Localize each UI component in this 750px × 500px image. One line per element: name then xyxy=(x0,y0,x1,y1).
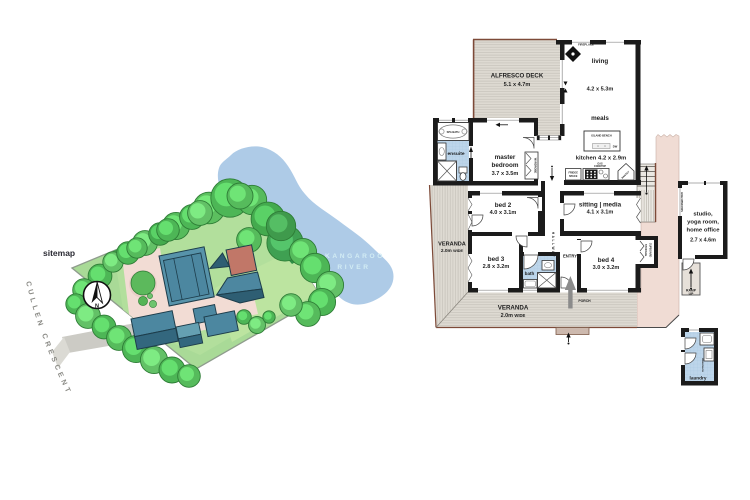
svg-text:studio,: studio, xyxy=(693,212,713,218)
svg-text:5.1 x 4.7m: 5.1 x 4.7m xyxy=(504,82,531,88)
svg-text:home office: home office xyxy=(686,228,720,234)
svg-text:KANGAROO: KANGAROO xyxy=(325,253,385,260)
svg-text:N: N xyxy=(95,304,99,310)
svg-text:ALFRESCO DECK: ALFRESCO DECK xyxy=(491,73,544,80)
svg-text:bed 3: bed 3 xyxy=(488,256,505,263)
svg-text:bedroom: bedroom xyxy=(492,162,519,169)
svg-text:SPACE: SPACE xyxy=(569,175,578,178)
svg-text:UP: UP xyxy=(689,292,694,296)
svg-text:3.7 x 3.5m: 3.7 x 3.5m xyxy=(492,171,519,177)
svg-text:3.0 x 3.2m: 3.0 x 3.2m xyxy=(593,265,620,271)
svg-text:PORCH: PORCH xyxy=(578,299,591,303)
svg-text:sitemap: sitemap xyxy=(43,248,75,258)
svg-text:VERANDA: VERANDA xyxy=(438,242,466,248)
svg-text:sitting | media: sitting | media xyxy=(579,202,622,209)
svg-text:bed 4: bed 4 xyxy=(598,257,615,264)
svg-text:HIGH WINDOWS: HIGH WINDOWS xyxy=(680,192,683,212)
svg-text:WASH MACH: WASH MACH xyxy=(701,358,704,372)
svg-text:DW: DW xyxy=(613,145,618,149)
svg-text:RIVER: RIVER xyxy=(337,264,370,271)
svg-text:2.7 x 4.6m: 2.7 x 4.6m xyxy=(690,238,716,244)
svg-text:4.0 x 3.1m: 4.0 x 3.1m xyxy=(490,210,517,216)
svg-text:4.1 x 3.1m: 4.1 x 3.1m xyxy=(587,210,614,216)
svg-text:FIREPLACE: FIREPLACE xyxy=(578,43,594,47)
svg-text:4.2 x 5.3m: 4.2 x 5.3m xyxy=(587,87,614,93)
svg-text:ensuite: ensuite xyxy=(447,151,464,157)
svg-text:master: master xyxy=(495,154,516,161)
svg-text:bath: bath xyxy=(525,271,535,276)
svg-text:STORAGE: STORAGE xyxy=(644,244,647,257)
svg-text:bed 2: bed 2 xyxy=(495,202,512,209)
svg-text:meals: meals xyxy=(591,115,609,122)
svg-text:yoga room,: yoga room, xyxy=(687,220,719,226)
svg-text:COOKTOP: COOKTOP xyxy=(594,165,606,168)
svg-text:SPA BATH: SPA BATH xyxy=(447,130,460,134)
svg-text:2.8 x 3.2m: 2.8 x 3.2m xyxy=(483,264,510,270)
svg-text:VERANDA: VERANDA xyxy=(498,305,529,312)
svg-text:ISLAND BENCH: ISLAND BENCH xyxy=(591,134,611,138)
svg-text:living: living xyxy=(592,58,609,65)
svg-text:CUPBOARD: CUPBOARD xyxy=(649,243,652,258)
svg-text:kitchen 4.2 x 2.9m: kitchen 4.2 x 2.9m xyxy=(576,156,626,162)
svg-text:ENTRY: ENTRY xyxy=(563,254,577,259)
svg-text:laundry: laundry xyxy=(690,376,707,381)
svg-text:WARDROBE: WARDROBE xyxy=(534,158,538,174)
svg-text:HALLWAY: HALLWAY xyxy=(551,232,555,259)
